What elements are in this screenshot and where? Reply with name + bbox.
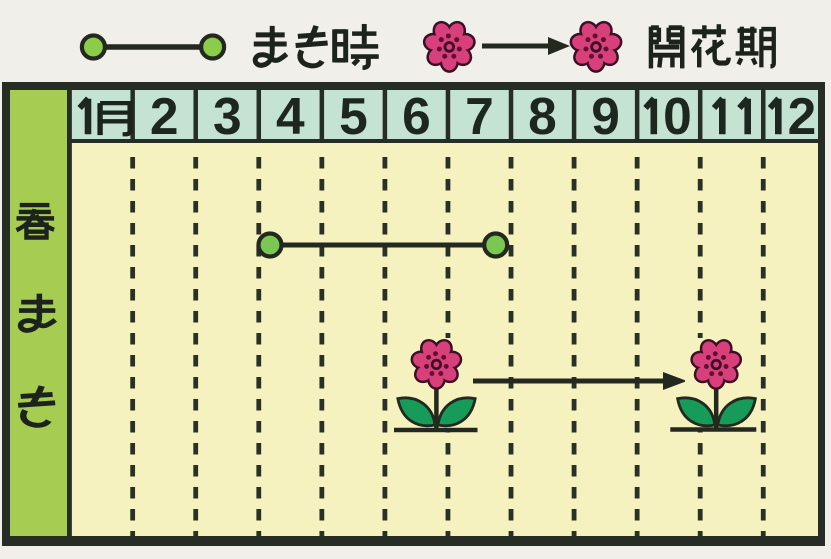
svg-text:7: 7 xyxy=(465,87,494,145)
svg-text:9: 9 xyxy=(591,87,620,145)
svg-text:8: 8 xyxy=(528,87,557,145)
svg-text:4: 4 xyxy=(276,87,305,145)
svg-text:2: 2 xyxy=(788,87,817,145)
svg-text:3: 3 xyxy=(213,87,242,145)
svg-text:0: 0 xyxy=(663,87,692,145)
svg-text:5: 5 xyxy=(339,87,368,145)
svg-text:6: 6 xyxy=(402,87,431,145)
svg-text:2: 2 xyxy=(150,87,179,145)
